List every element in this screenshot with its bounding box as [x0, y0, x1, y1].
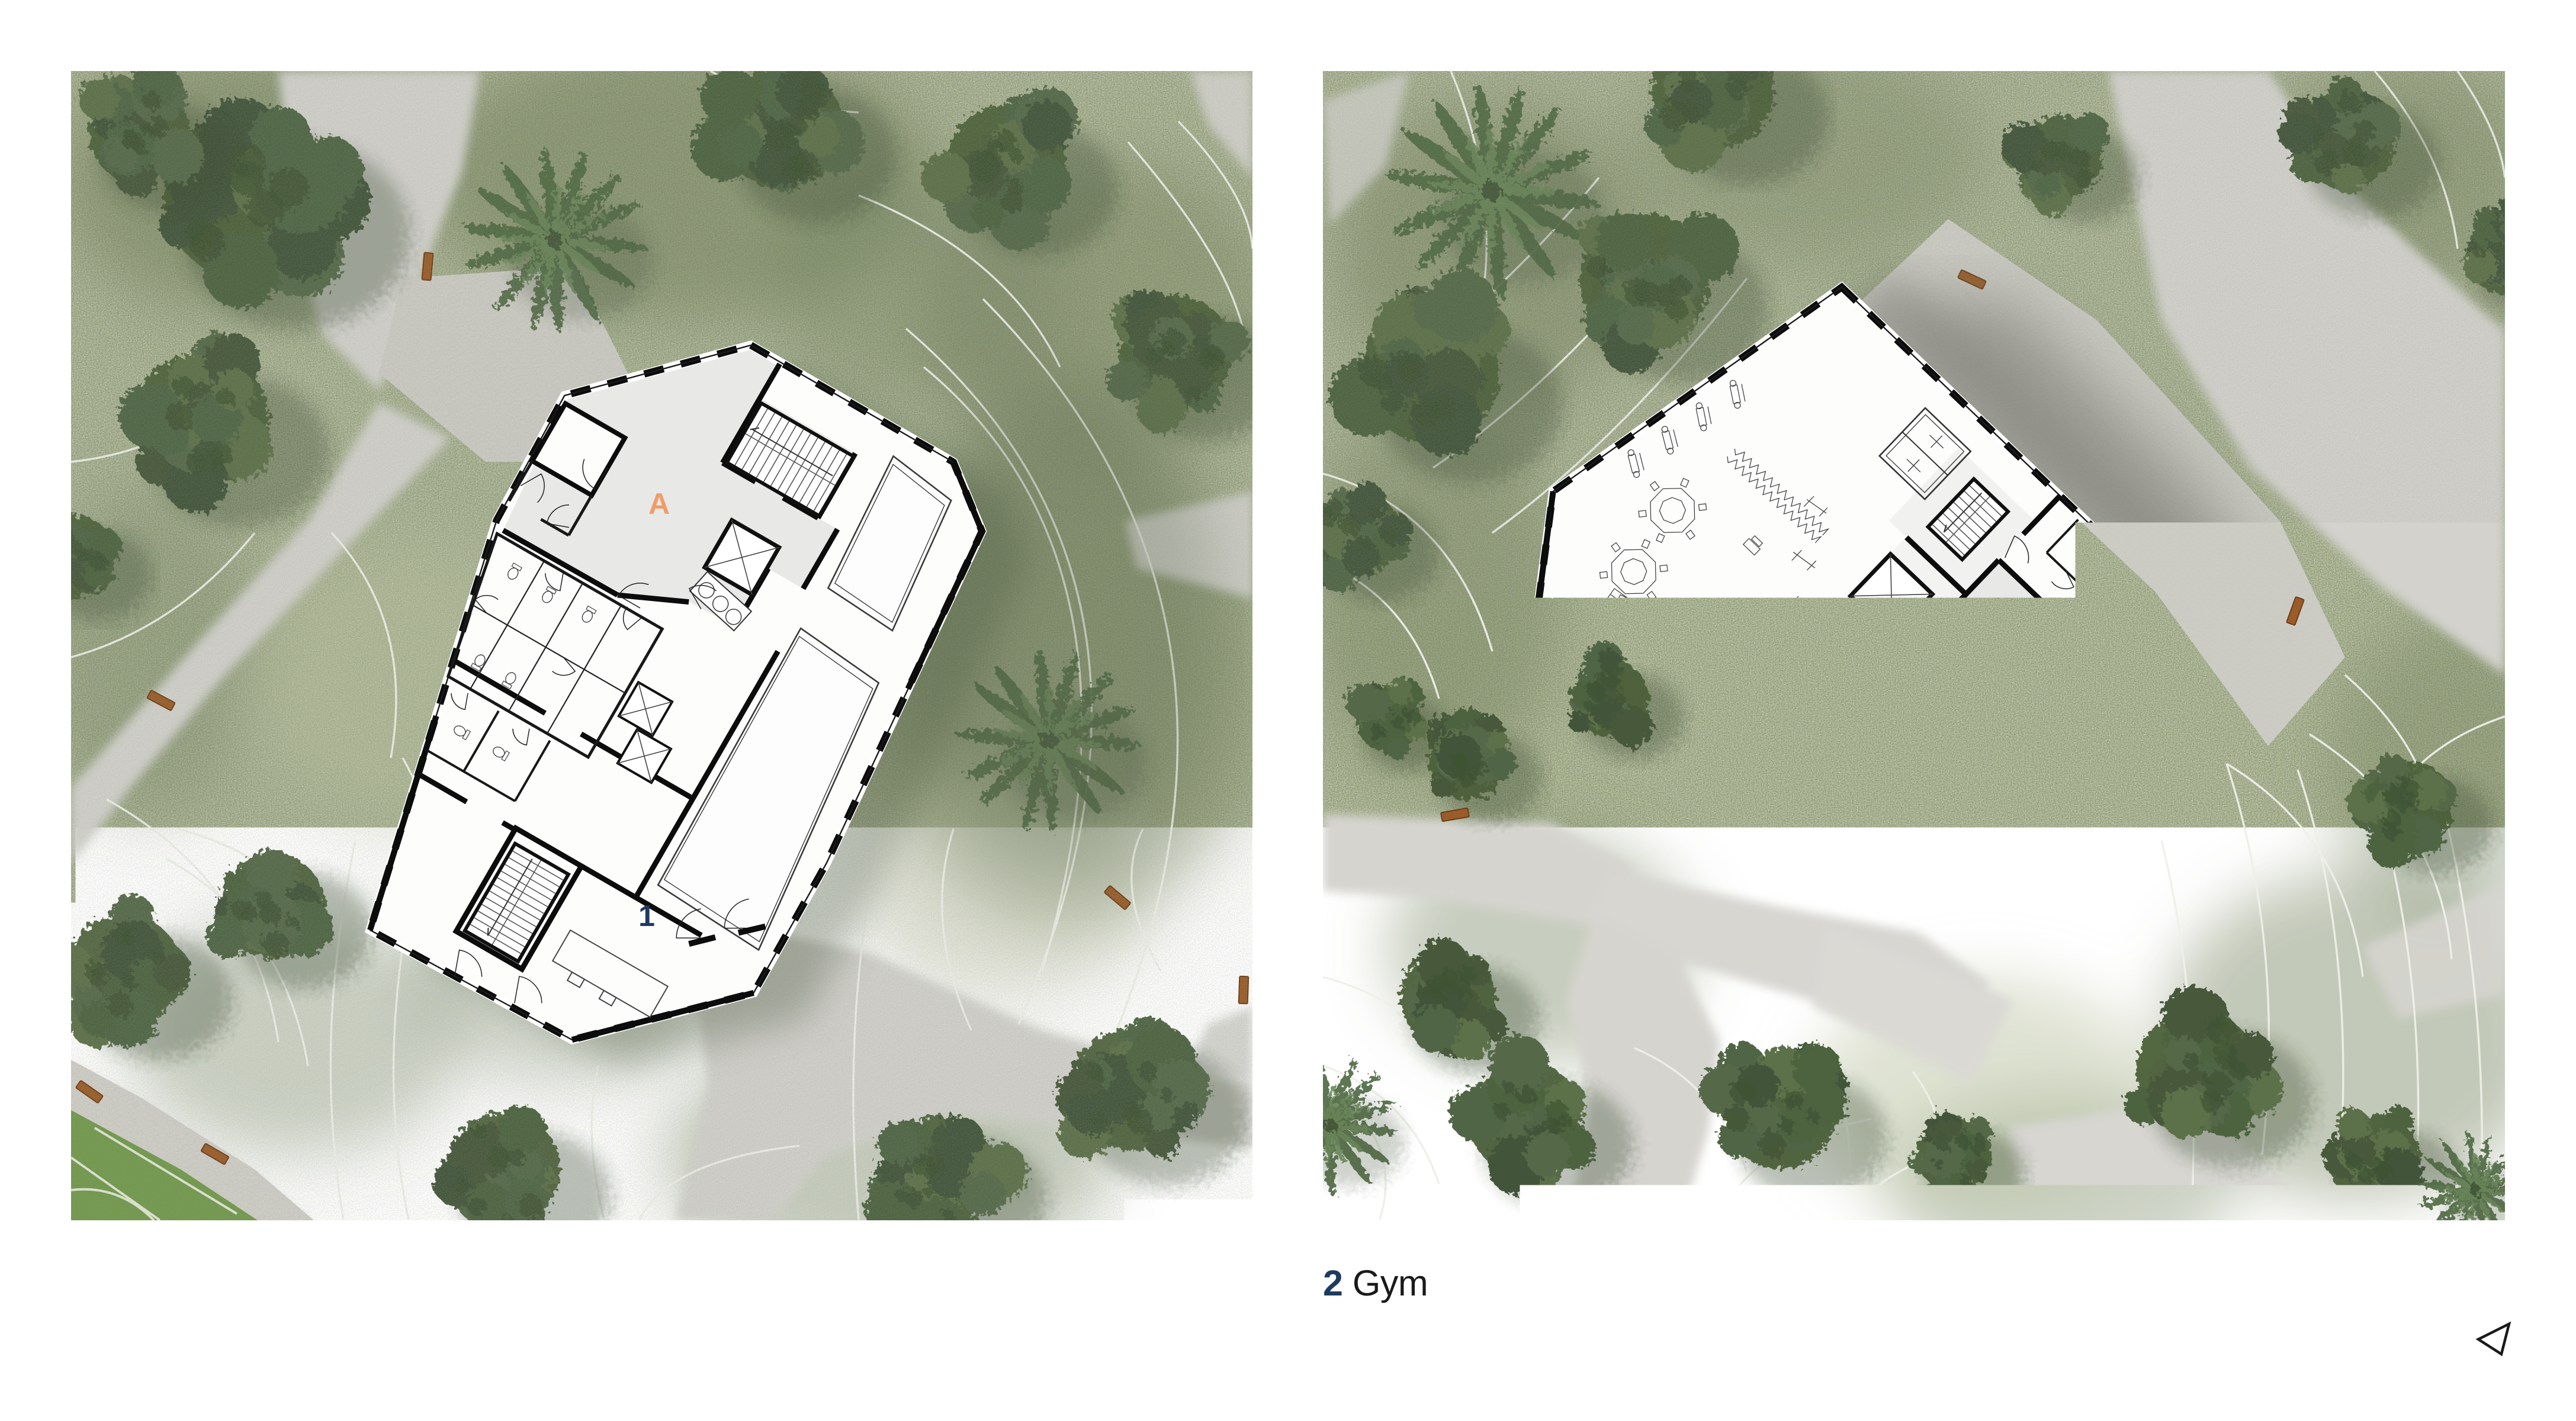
svg-text:B: B	[1994, 663, 2015, 696]
svg-text:1: 1	[638, 899, 655, 933]
svg-text:2: 2	[1823, 721, 1839, 754]
svg-text:A: A	[648, 487, 670, 520]
